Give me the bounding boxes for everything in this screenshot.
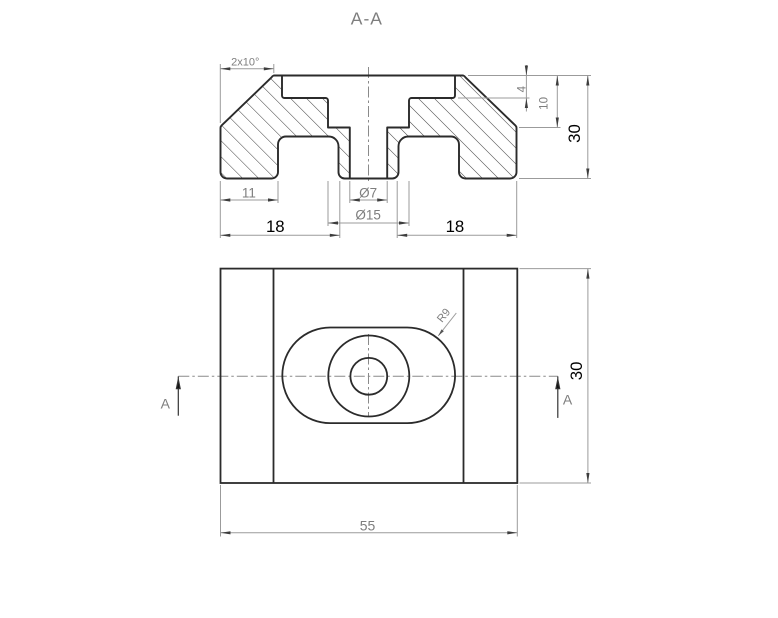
- svg-text:30: 30: [565, 124, 584, 143]
- svg-text:Ø15: Ø15: [355, 208, 381, 223]
- svg-text:18: 18: [446, 217, 465, 236]
- svg-text:30: 30: [567, 362, 586, 381]
- svg-text:11: 11: [242, 186, 256, 201]
- svg-text:A: A: [161, 396, 171, 412]
- svg-text:A-A: A-A: [351, 9, 383, 29]
- svg-text:R9: R9: [435, 307, 453, 325]
- svg-text:2x10°: 2x10°: [231, 57, 259, 69]
- svg-text:A: A: [563, 391, 573, 407]
- svg-text:55: 55: [360, 518, 376, 534]
- svg-text:Ø7: Ø7: [359, 186, 377, 201]
- svg-text:10: 10: [539, 97, 551, 110]
- svg-text:18: 18: [266, 217, 285, 236]
- svg-text:4: 4: [516, 85, 528, 92]
